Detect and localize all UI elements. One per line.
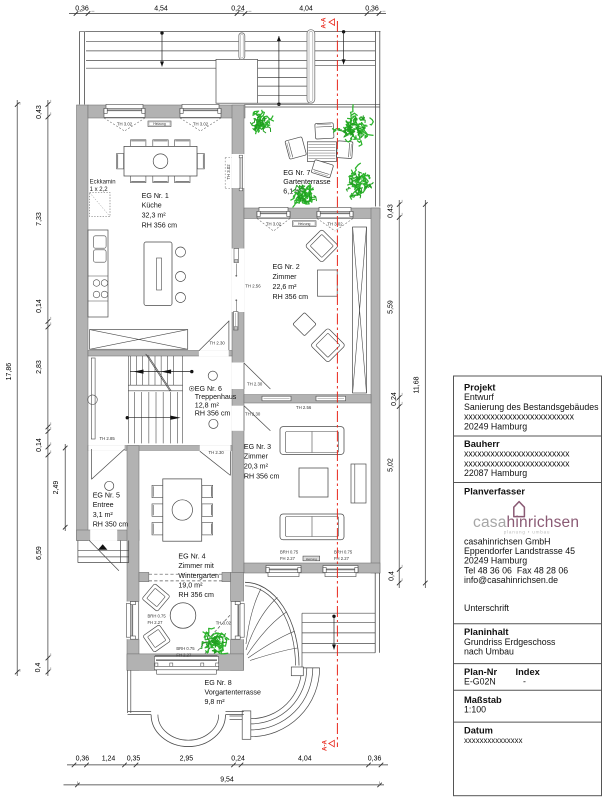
svg-text:xxxxxxxxxxxxxxxxxxxxxxxx: xxxxxxxxxxxxxxxxxxxxxxxx bbox=[464, 458, 570, 468]
svg-text:FH 2.27: FH 2.27 bbox=[334, 556, 350, 561]
svg-text:11,68: 11,68 bbox=[414, 376, 421, 393]
svg-text:0,36: 0,36 bbox=[368, 756, 382, 763]
svg-text:TH 2.85: TH 2.85 bbox=[100, 436, 116, 441]
svg-text:4,04: 4,04 bbox=[299, 6, 313, 13]
svg-text:0,36: 0,36 bbox=[365, 6, 379, 13]
svg-text:0,24: 0,24 bbox=[391, 392, 398, 406]
svg-text:TH 3.02: TH 3.02 bbox=[266, 222, 282, 227]
svg-text:xxxxxxxxxxxxxxxxxxxxxxxxx: xxxxxxxxxxxxxxxxxxxxxxxxx bbox=[464, 412, 575, 422]
svg-text:6,59: 6,59 bbox=[36, 546, 43, 560]
svg-text:EG Nr. 2: EG Nr. 2 bbox=[273, 263, 300, 271]
svg-text:Bauherr: Bauherr bbox=[464, 439, 500, 449]
svg-text:BRH 0.75: BRH 0.75 bbox=[280, 550, 299, 555]
svg-text:E-G02N: E-G02N bbox=[464, 677, 496, 687]
svg-text:Maßstab: Maßstab bbox=[464, 695, 502, 705]
svg-text:9,8 m²: 9,8 m² bbox=[205, 698, 226, 706]
svg-text:22,6 m²: 22,6 m² bbox=[273, 283, 298, 291]
svg-text:TH 3.02: TH 3.02 bbox=[117, 122, 133, 127]
svg-text:casahinrichsen GmbH: casahinrichsen GmbH bbox=[464, 536, 551, 546]
svg-text:RH 356 cm: RH 356 cm bbox=[178, 591, 214, 599]
svg-text:22087 Hamburg: 22087 Hamburg bbox=[464, 468, 527, 478]
svg-text:EG Nr. 1: EG Nr. 1 bbox=[142, 192, 169, 200]
svg-text:Zimmer: Zimmer bbox=[273, 273, 298, 281]
svg-text:BRH 0.75: BRH 0.75 bbox=[148, 614, 167, 619]
svg-text:Zimmer: Zimmer bbox=[244, 453, 269, 461]
svg-text:Heizung: Heizung bbox=[153, 122, 166, 126]
svg-text:xxxxxxxxxxxxxxxxxxxxxxxx: xxxxxxxxxxxxxxxxxxxxxxxx bbox=[464, 449, 570, 459]
svg-text:Eckkamin: Eckkamin bbox=[90, 180, 116, 186]
svg-text:TH 2.30: TH 2.30 bbox=[210, 341, 226, 346]
svg-text:0,14: 0,14 bbox=[36, 299, 43, 313]
svg-text:-: - bbox=[523, 677, 526, 687]
svg-text:2,83: 2,83 bbox=[36, 360, 43, 374]
svg-text:Eppendorfer Landstrasse 45: Eppendorfer Landstrasse 45 bbox=[464, 546, 575, 556]
svg-text:casahinrichsen: casahinrichsen bbox=[473, 514, 579, 531]
svg-text:EG Nr. 6: EG Nr. 6 bbox=[195, 385, 222, 393]
svg-text:Treppenhaus: Treppenhaus bbox=[195, 393, 237, 401]
svg-text:RH 356 cm: RH 356 cm bbox=[273, 293, 309, 301]
svg-text:Küche: Küche bbox=[142, 202, 162, 210]
svg-text:7,33: 7,33 bbox=[36, 212, 43, 226]
svg-text:20249 Hamburg: 20249 Hamburg bbox=[464, 556, 527, 566]
svg-text:0,4: 0,4 bbox=[35, 663, 42, 673]
svg-text:1:100: 1:100 bbox=[464, 705, 486, 715]
svg-text:Planinhalt: Planinhalt bbox=[464, 627, 508, 637]
svg-text:Plan-Nr: Plan-Nr bbox=[464, 667, 497, 677]
svg-text:FH 2.27: FH 2.27 bbox=[148, 620, 164, 625]
svg-text:TH 3.02: TH 3.02 bbox=[327, 222, 343, 227]
svg-text:4,54: 4,54 bbox=[154, 6, 168, 13]
svg-text:Unterschrift: Unterschrift bbox=[464, 603, 510, 613]
svg-text:3,1 m²: 3,1 m² bbox=[93, 511, 114, 519]
svg-text:TH 3.02: TH 3.02 bbox=[216, 621, 232, 626]
svg-text:EG Nr. 5: EG Nr. 5 bbox=[93, 492, 120, 500]
svg-text:32,3 m²: 32,3 m² bbox=[142, 212, 167, 220]
svg-text:Grundriss Erdgeschoss: Grundriss Erdgeschoss bbox=[464, 637, 556, 647]
svg-text:xxxxxxxxxxxxxxx: xxxxxxxxxxxxxxx bbox=[464, 736, 523, 745]
svg-text:5,59: 5,59 bbox=[388, 300, 395, 314]
svg-text:EG Nr. 4: EG Nr. 4 bbox=[178, 552, 205, 560]
svg-text:20249 Hamburg: 20249 Hamburg bbox=[464, 421, 527, 431]
svg-text:TH 2.56: TH 2.56 bbox=[245, 284, 261, 289]
svg-text:Heizung: Heizung bbox=[298, 222, 311, 226]
svg-text:Wintergarten: Wintergarten bbox=[178, 572, 219, 580]
svg-text:Vorgartenterrasse: Vorgartenterrasse bbox=[205, 689, 261, 697]
svg-text:planung • umbau: planung • umbau bbox=[504, 530, 551, 535]
svg-text:0,36: 0,36 bbox=[76, 756, 90, 763]
svg-text:TH 3.02: TH 3.02 bbox=[226, 164, 231, 180]
svg-text:FH 2.27: FH 2.27 bbox=[280, 556, 296, 561]
svg-text:BRH 0.75: BRH 0.75 bbox=[334, 550, 353, 555]
svg-text:2,95: 2,95 bbox=[180, 756, 194, 763]
svg-text:EG Nr. 7: EG Nr. 7 bbox=[283, 169, 310, 177]
svg-text:2,49: 2,49 bbox=[53, 481, 60, 495]
svg-text:0,4: 0,4 bbox=[389, 571, 396, 581]
svg-text:TH 3.02: TH 3.02 bbox=[193, 122, 209, 127]
svg-text:TH 2.30: TH 2.30 bbox=[245, 412, 261, 417]
svg-text:0,36: 0,36 bbox=[75, 6, 89, 13]
svg-text:EG Nr. 8: EG Nr. 8 bbox=[205, 679, 232, 687]
svg-text:1,24: 1,24 bbox=[102, 756, 116, 763]
svg-text:0,24: 0,24 bbox=[231, 6, 245, 13]
svg-text:A-A: A-A bbox=[321, 739, 328, 751]
svg-text:RH 356 cm: RH 356 cm bbox=[142, 221, 178, 229]
svg-text:Projekt: Projekt bbox=[464, 383, 496, 393]
svg-text:4,04: 4,04 bbox=[298, 756, 312, 763]
svg-text:TH 2.56: TH 2.56 bbox=[296, 405, 312, 410]
svg-text:Heizung: Heizung bbox=[306, 557, 317, 561]
svg-text:1 x 2,2: 1 x 2,2 bbox=[90, 187, 109, 193]
svg-text:Zimmer mit: Zimmer mit bbox=[178, 562, 213, 570]
svg-text:0,43: 0,43 bbox=[36, 105, 43, 119]
svg-text:RH 356 cm: RH 356 cm bbox=[195, 409, 231, 417]
svg-text:Entree: Entree bbox=[93, 501, 114, 509]
svg-text:RH 356 cm: RH 356 cm bbox=[244, 473, 280, 481]
svg-text:20,3 m²: 20,3 m² bbox=[244, 462, 269, 470]
svg-text:A-A: A-A bbox=[321, 17, 328, 29]
svg-text:0,24: 0,24 bbox=[231, 756, 245, 763]
svg-text:Tel 48 36 06 Fax 48 28 06: Tel 48 36 06 Fax 48 28 06 bbox=[464, 565, 568, 575]
svg-text:Entwurf: Entwurf bbox=[464, 392, 494, 402]
svg-text:EG Nr. 3: EG Nr. 3 bbox=[244, 443, 271, 451]
svg-text:9,54: 9,54 bbox=[220, 777, 234, 784]
svg-text:19,0 m²: 19,0 m² bbox=[178, 581, 203, 589]
svg-text:0,14: 0,14 bbox=[36, 438, 43, 452]
svg-text:FH 2.27: FH 2.27 bbox=[176, 652, 192, 657]
svg-text:TH 2.30: TH 2.30 bbox=[209, 450, 225, 455]
svg-text:Sanierung des Bestandsgebäudes: Sanierung des Bestandsgebäudes bbox=[464, 402, 599, 412]
svg-text:0,35: 0,35 bbox=[127, 756, 141, 763]
svg-text:Gartenterrasse: Gartenterrasse bbox=[283, 178, 330, 186]
svg-text:BRH 0.75: BRH 0.75 bbox=[176, 646, 195, 651]
svg-text:Planverfasser: Planverfasser bbox=[464, 487, 525, 497]
svg-text:nach Umbau: nach Umbau bbox=[464, 647, 514, 657]
svg-text:12,8 m²: 12,8 m² bbox=[195, 401, 220, 409]
svg-text:17,86: 17,86 bbox=[6, 363, 13, 381]
svg-text:5,02: 5,02 bbox=[388, 458, 395, 472]
svg-text:Datum: Datum bbox=[464, 726, 493, 736]
svg-text:RH 350 cm: RH 350 cm bbox=[93, 521, 129, 529]
svg-text:TH 2.30: TH 2.30 bbox=[247, 382, 263, 387]
svg-text:info@casahinrichsen.de: info@casahinrichsen.de bbox=[464, 575, 558, 585]
svg-text:Index: Index bbox=[516, 667, 541, 677]
svg-text:0,43: 0,43 bbox=[388, 204, 395, 218]
